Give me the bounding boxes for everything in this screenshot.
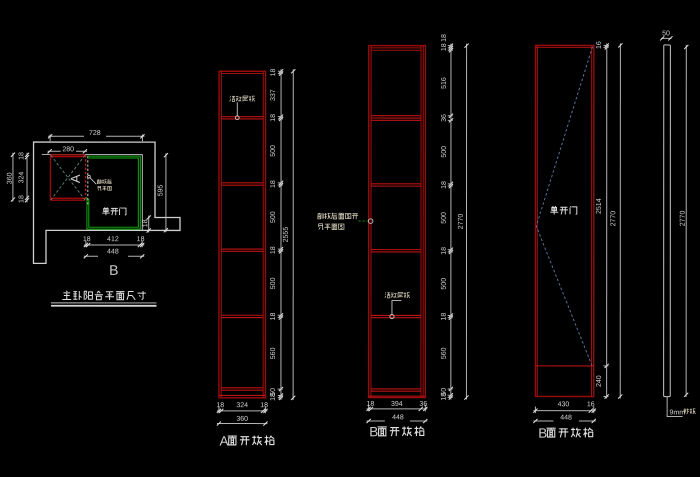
svg-text:16: 16 xyxy=(587,401,595,408)
svg-text:2770: 2770 xyxy=(458,214,465,230)
svg-text:18: 18 xyxy=(441,393,448,401)
svg-text:18: 18 xyxy=(270,180,277,188)
svg-text:280: 280 xyxy=(62,146,74,153)
svg-text:560: 560 xyxy=(270,347,277,359)
svg-text:B: B xyxy=(109,262,118,278)
svg-text:18: 18 xyxy=(18,195,25,203)
svg-text:18: 18 xyxy=(441,181,448,189)
svg-text:18: 18 xyxy=(441,313,448,321)
svg-text:560: 560 xyxy=(441,347,448,359)
svg-text:2770: 2770 xyxy=(610,211,617,227)
svg-text:516: 516 xyxy=(441,77,448,89)
svg-text:18: 18 xyxy=(83,236,91,243)
svg-text:448: 448 xyxy=(107,248,119,255)
svg-text:412: 412 xyxy=(107,236,119,243)
svg-text:500: 500 xyxy=(270,277,277,289)
svg-text:500: 500 xyxy=(441,146,448,158)
svg-text:324: 324 xyxy=(18,172,25,184)
svg-text:A: A xyxy=(68,174,83,183)
svg-text:18: 18 xyxy=(367,401,375,408)
svg-text:18: 18 xyxy=(260,402,268,409)
svg-text:728: 728 xyxy=(89,130,101,137)
svg-text:18: 18 xyxy=(270,68,277,76)
svg-text:394: 394 xyxy=(391,401,403,408)
svg-text:448: 448 xyxy=(560,414,572,421)
svg-text:360: 360 xyxy=(236,416,248,423)
svg-text:18: 18 xyxy=(270,114,277,122)
svg-text:18: 18 xyxy=(18,152,25,160)
svg-text:18: 18 xyxy=(441,43,448,51)
svg-text:2770: 2770 xyxy=(680,211,687,227)
svg-text:B: B xyxy=(538,426,547,441)
svg-text:360: 360 xyxy=(7,172,14,184)
svg-text:18: 18 xyxy=(441,247,448,255)
svg-text:500: 500 xyxy=(270,145,277,157)
svg-text:448: 448 xyxy=(392,414,404,421)
svg-text:18: 18 xyxy=(270,246,277,254)
svg-text:500: 500 xyxy=(441,212,448,224)
svg-text:18: 18 xyxy=(142,219,149,227)
svg-text:2555: 2555 xyxy=(283,227,290,243)
svg-text:A: A xyxy=(220,433,229,448)
svg-text:50: 50 xyxy=(662,30,670,37)
svg-text:36: 36 xyxy=(419,401,427,408)
svg-text:18: 18 xyxy=(216,402,224,409)
svg-text:337: 337 xyxy=(270,89,277,101)
svg-text:430: 430 xyxy=(558,401,570,408)
svg-text:18: 18 xyxy=(137,236,145,243)
svg-text:500: 500 xyxy=(441,278,448,290)
svg-text:18: 18 xyxy=(270,312,277,320)
svg-text:9mm: 9mm xyxy=(670,409,686,416)
svg-text:B: B xyxy=(369,424,378,439)
svg-text:595: 595 xyxy=(158,184,165,196)
svg-text:2514: 2514 xyxy=(596,198,603,214)
svg-text:500: 500 xyxy=(270,211,277,223)
svg-text:18: 18 xyxy=(270,393,277,401)
svg-text:324: 324 xyxy=(236,402,248,409)
svg-text:16: 16 xyxy=(596,41,603,49)
svg-text:18: 18 xyxy=(441,34,448,42)
svg-text:36: 36 xyxy=(441,114,448,122)
svg-text:240: 240 xyxy=(596,375,603,387)
